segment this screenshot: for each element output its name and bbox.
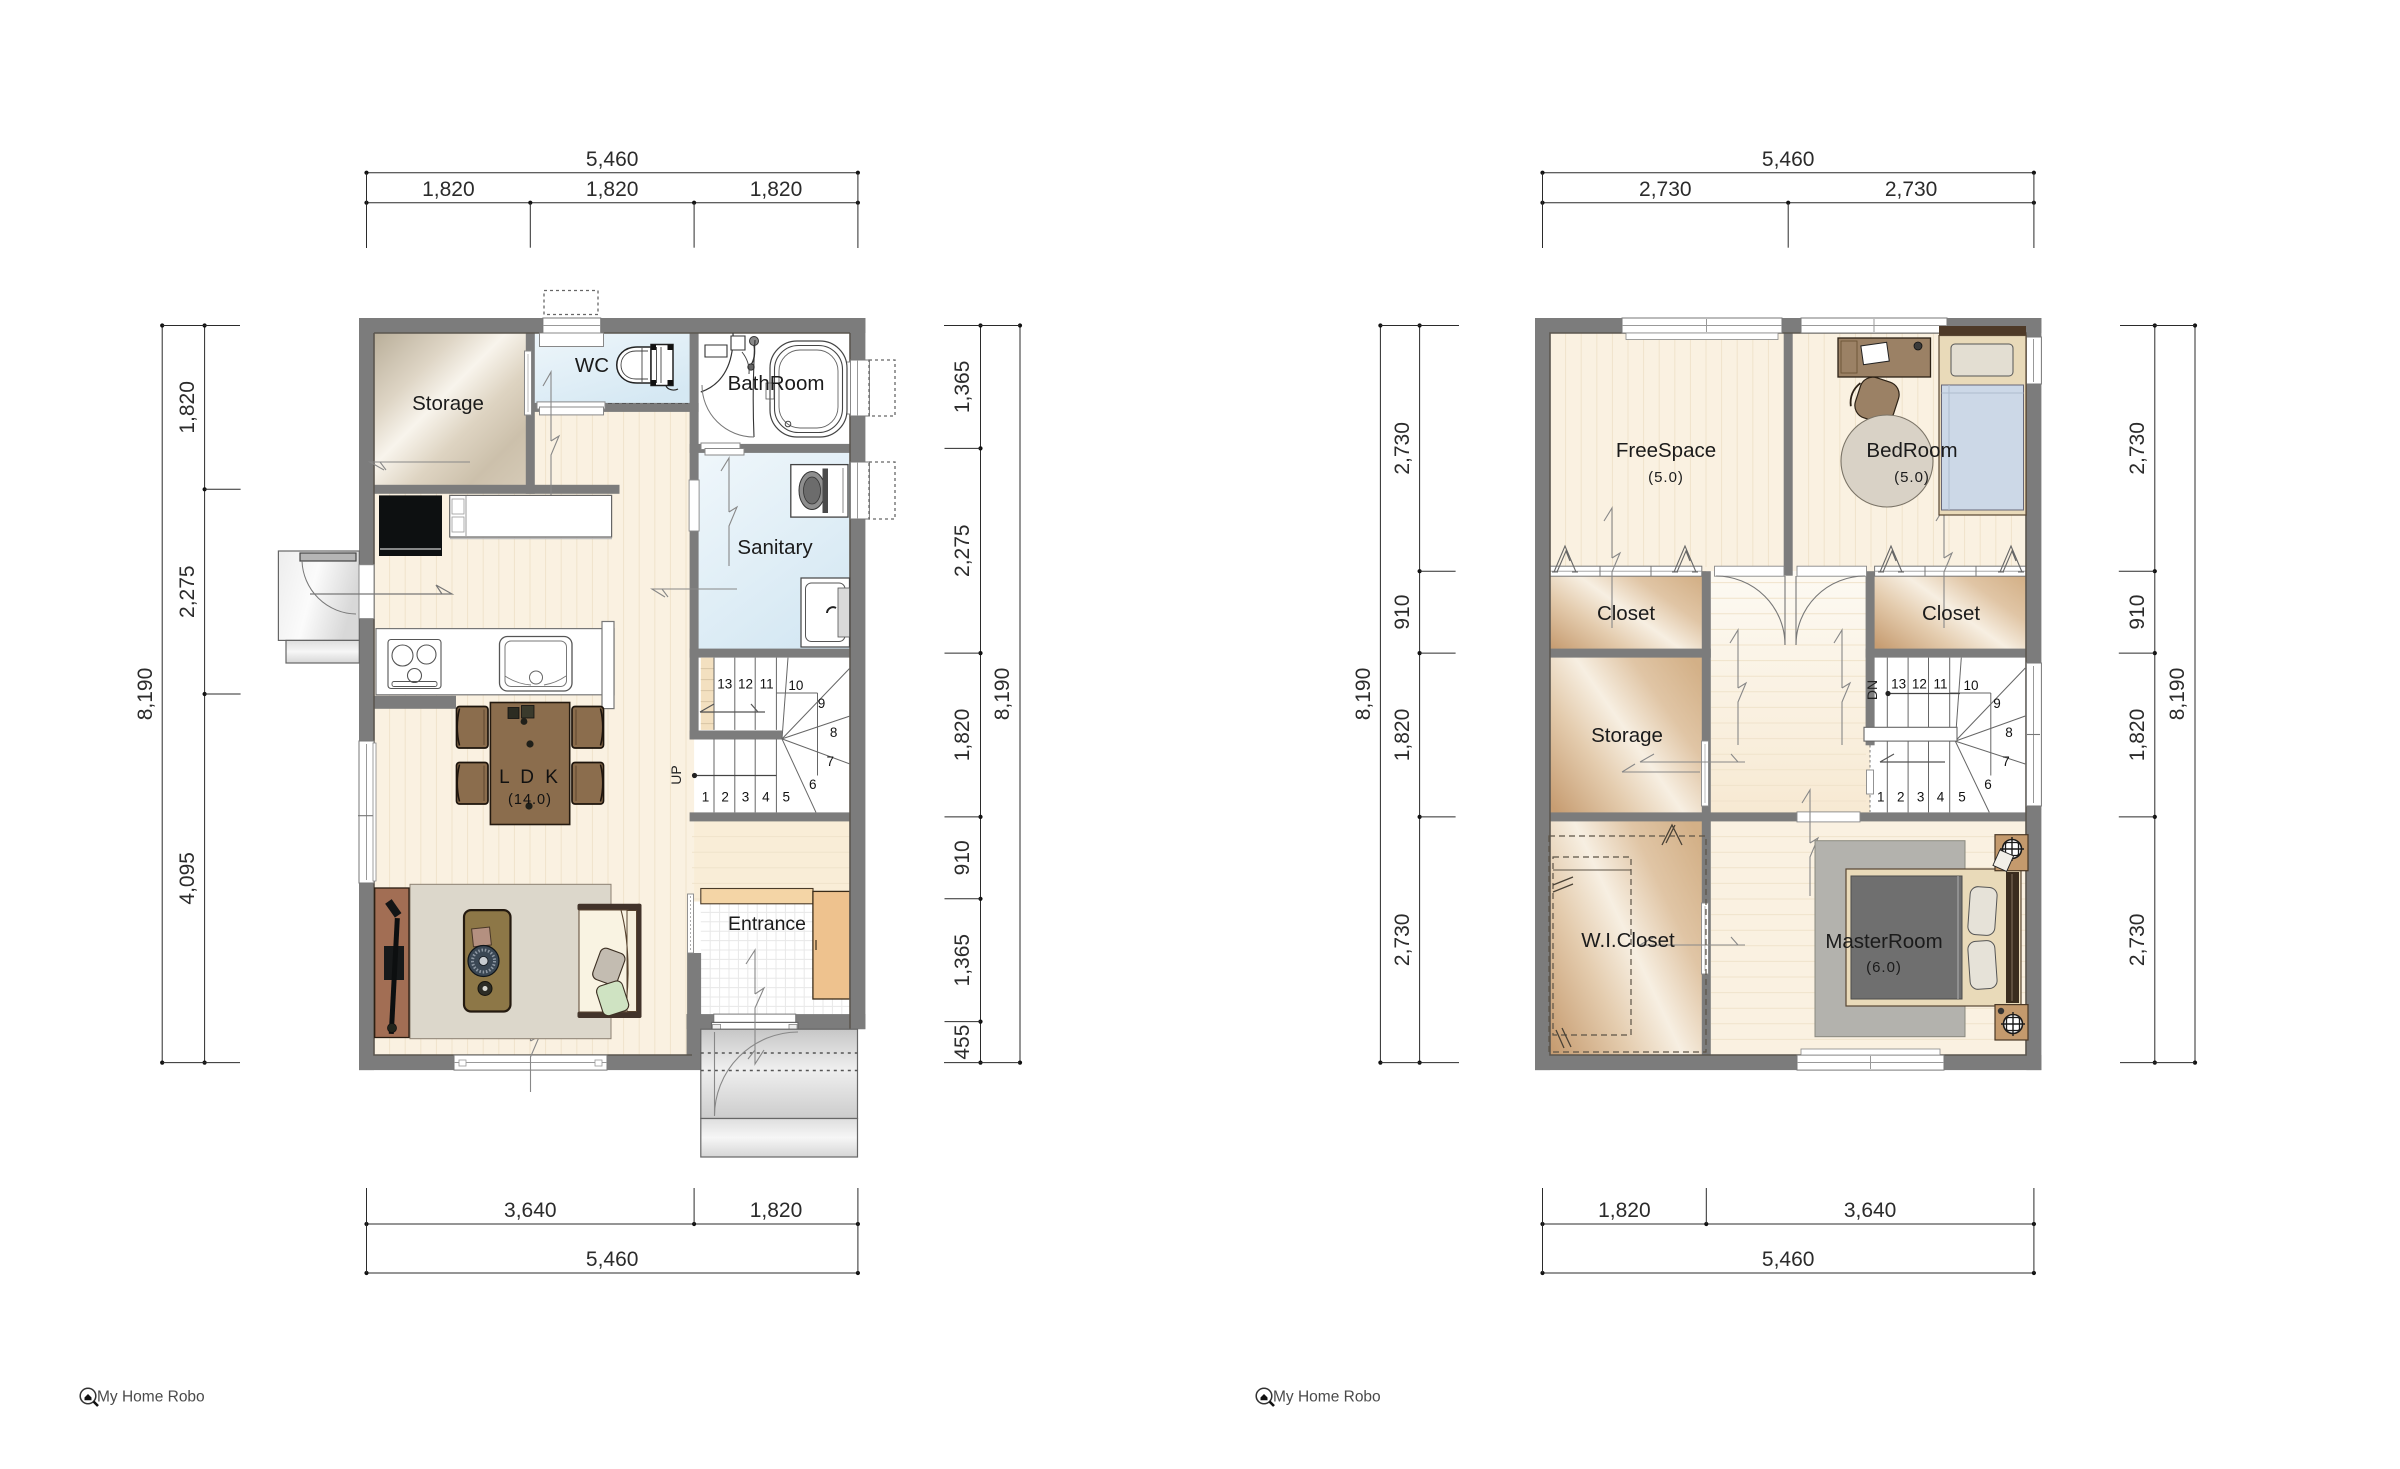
svg-text:2: 2	[721, 790, 729, 805]
svg-text:2,730: 2,730	[2126, 914, 2149, 967]
svg-text:2,730: 2,730	[1885, 178, 1938, 201]
svg-text:4: 4	[762, 790, 770, 805]
svg-text:BedRoom: BedRoom	[1866, 439, 1957, 462]
svg-text:WC: WC	[575, 354, 609, 377]
svg-text:9: 9	[818, 696, 826, 711]
svg-text:3: 3	[742, 790, 750, 805]
svg-text:13: 13	[717, 677, 732, 692]
svg-text:12: 12	[1912, 677, 1927, 692]
svg-text:6: 6	[809, 777, 817, 792]
svg-text:11: 11	[1933, 677, 1947, 692]
svg-text:My Home Robo: My Home Robo	[97, 1389, 205, 1406]
svg-text:Closet: Closet	[1597, 602, 1655, 625]
svg-text:BathRoom: BathRoom	[728, 372, 825, 395]
svg-text:2,275: 2,275	[176, 565, 199, 618]
svg-text:4,095: 4,095	[176, 852, 199, 905]
svg-text:L D K: L D K	[499, 767, 561, 788]
svg-text:5,460: 5,460	[1762, 148, 1815, 171]
svg-text:1,820: 1,820	[2126, 709, 2149, 762]
svg-text:6: 6	[1984, 777, 1992, 792]
svg-text:1,365: 1,365	[951, 934, 974, 987]
svg-text:2,275: 2,275	[951, 524, 974, 577]
svg-text:2,730: 2,730	[1391, 914, 1414, 967]
svg-text:(5.0): (5.0)	[1648, 469, 1684, 486]
svg-text:2,730: 2,730	[2126, 422, 2149, 475]
svg-text:8,190: 8,190	[991, 668, 1014, 721]
svg-text:MasterRoom: MasterRoom	[1825, 930, 1942, 953]
svg-text:DN: DN	[1864, 680, 1880, 700]
svg-text:3,640: 3,640	[504, 1199, 557, 1222]
svg-text:1,820: 1,820	[750, 178, 803, 201]
svg-text:(5.0): (5.0)	[1894, 469, 1930, 486]
svg-text:2: 2	[1897, 790, 1905, 805]
svg-text:8,190: 8,190	[1352, 668, 1375, 721]
svg-text:W.I.Closet: W.I.Closet	[1581, 929, 1675, 952]
svg-text:8: 8	[830, 725, 838, 740]
svg-text:12: 12	[738, 677, 753, 692]
svg-text:1,820: 1,820	[586, 178, 639, 201]
svg-text:Storage: Storage	[412, 392, 484, 415]
svg-text:7: 7	[827, 754, 835, 769]
svg-text:2,730: 2,730	[1391, 422, 1414, 475]
svg-text:Storage: Storage	[1591, 724, 1663, 747]
svg-text:8,190: 8,190	[2166, 668, 2189, 721]
svg-text:910: 910	[2126, 595, 2149, 630]
svg-text:FreeSpace: FreeSpace	[1616, 439, 1716, 462]
svg-text:Sanitary: Sanitary	[737, 536, 813, 559]
svg-text:4: 4	[1937, 790, 1945, 805]
svg-text:(14.0): (14.0)	[508, 792, 552, 808]
svg-text:Closet: Closet	[1922, 602, 1980, 625]
svg-text:Entrance: Entrance	[728, 913, 806, 935]
svg-text:8,190: 8,190	[134, 668, 157, 721]
svg-text:1,820: 1,820	[750, 1199, 803, 1222]
svg-text:1,820: 1,820	[422, 178, 475, 201]
svg-text:5: 5	[782, 790, 790, 805]
svg-text:455: 455	[951, 1025, 974, 1060]
svg-text:2,730: 2,730	[1639, 178, 1692, 201]
svg-text:1,820: 1,820	[1598, 1199, 1651, 1222]
svg-text:1,820: 1,820	[951, 709, 974, 762]
svg-text:(6.0): (6.0)	[1866, 959, 1902, 976]
svg-text:1,365: 1,365	[951, 361, 974, 414]
svg-text:5,460: 5,460	[586, 1248, 639, 1271]
svg-text:7: 7	[2002, 754, 2010, 769]
svg-text:5,460: 5,460	[586, 148, 639, 171]
svg-text:910: 910	[1391, 595, 1414, 630]
svg-text:1,820: 1,820	[1391, 709, 1414, 762]
svg-text:13: 13	[1891, 677, 1906, 692]
svg-text:5,460: 5,460	[1762, 1248, 1815, 1271]
svg-text:My Home Robo: My Home Robo	[1273, 1389, 1381, 1406]
svg-text:8: 8	[2005, 725, 2013, 740]
svg-text:UP: UP	[668, 765, 684, 784]
svg-text:10: 10	[1963, 678, 1978, 693]
svg-text:3: 3	[1917, 790, 1925, 805]
svg-text:3,640: 3,640	[1844, 1199, 1897, 1222]
svg-text:11: 11	[760, 677, 774, 692]
svg-text:9: 9	[1993, 696, 2001, 711]
svg-text:1: 1	[702, 790, 710, 805]
svg-text:910: 910	[951, 840, 974, 875]
svg-text:1: 1	[1877, 790, 1885, 805]
svg-text:1,820: 1,820	[176, 381, 199, 434]
svg-text:5: 5	[1958, 790, 1966, 805]
svg-text:10: 10	[788, 678, 803, 693]
